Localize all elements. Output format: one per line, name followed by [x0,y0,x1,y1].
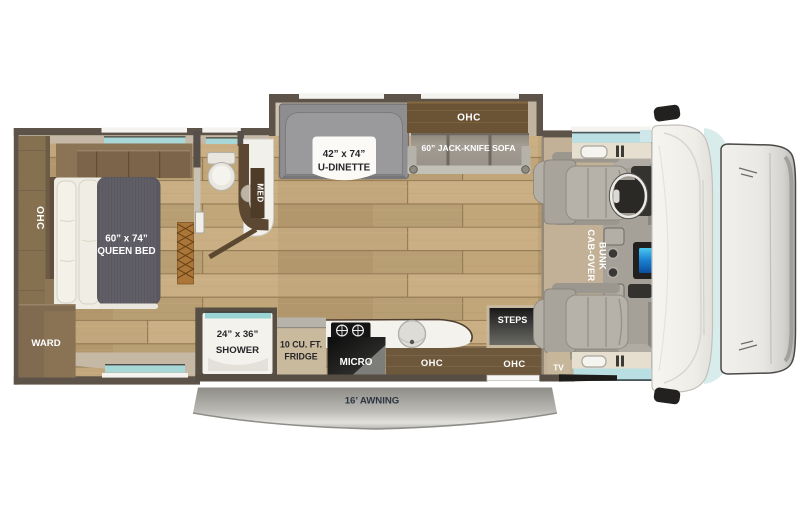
svg-text:42” x 74”: 42” x 74” [323,149,366,160]
svg-text:TV: TV [553,364,564,373]
svg-text:WARD: WARD [31,338,60,349]
svg-text:60” JACK-KNIFE SOFA: 60” JACK-KNIFE SOFA [421,143,515,153]
svg-text:OHC: OHC [34,206,45,230]
svg-text:STEPS: STEPS [498,315,528,325]
svg-text:OHC: OHC [457,113,481,124]
svg-text:MED: MED [256,183,265,202]
svg-text:24” x 36”: 24” x 36” [217,329,259,340]
svg-text:FRIDGE: FRIDGE [284,352,317,362]
svg-text:CAB-OVER: CAB-OVER [586,229,596,281]
svg-text:16’ AWNING: 16’ AWNING [345,396,400,407]
svg-text:SHOWER: SHOWER [216,345,259,356]
svg-text:U-DINETTE: U-DINETTE [318,163,371,174]
svg-text:BUNK: BUNK [598,242,608,270]
svg-text:60” x 74”: 60” x 74” [105,234,148,245]
svg-text:MICRO: MICRO [340,357,373,368]
svg-text:OHC: OHC [503,358,525,369]
svg-text:10 CU. FT.: 10 CU. FT. [280,340,322,350]
svg-text:QUEEN BED: QUEEN BED [97,246,155,257]
svg-text:OHC: OHC [421,357,443,368]
